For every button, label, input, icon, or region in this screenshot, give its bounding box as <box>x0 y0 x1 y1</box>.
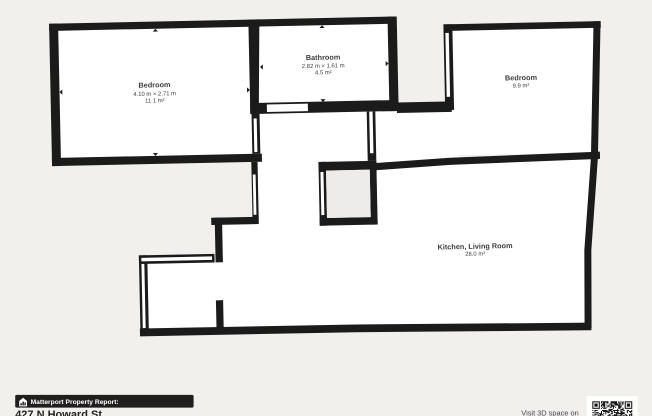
svg-text:11.1 m²: 11.1 m² <box>145 98 165 104</box>
svg-text:Bathroom: Bathroom <box>306 52 341 62</box>
svg-text:Bedroom: Bedroom <box>138 80 171 90</box>
svg-text:2.82 m × 1.61 m: 2.82 m × 1.61 m <box>302 63 345 70</box>
svg-text:427 N Howard St: 427 N Howard St <box>15 409 102 416</box>
svg-text:4.5 m²: 4.5 m² <box>315 70 332 76</box>
svg-text:9.9 m²: 9.9 m² <box>513 83 530 89</box>
svg-text:Bedroom: Bedroom <box>505 73 538 83</box>
svg-text:Kitchen, Living Room: Kitchen, Living Room <box>437 241 513 252</box>
svg-text:4.10 m × 2.71 m: 4.10 m × 2.71 m <box>133 91 176 98</box>
svg-text:Matterport Property Report:: Matterport Property Report: <box>31 399 119 406</box>
svg-text:28.0 m²: 28.0 m² <box>465 251 485 257</box>
svg-text:Visit 3D space on: Visit 3D space on <box>521 408 578 416</box>
